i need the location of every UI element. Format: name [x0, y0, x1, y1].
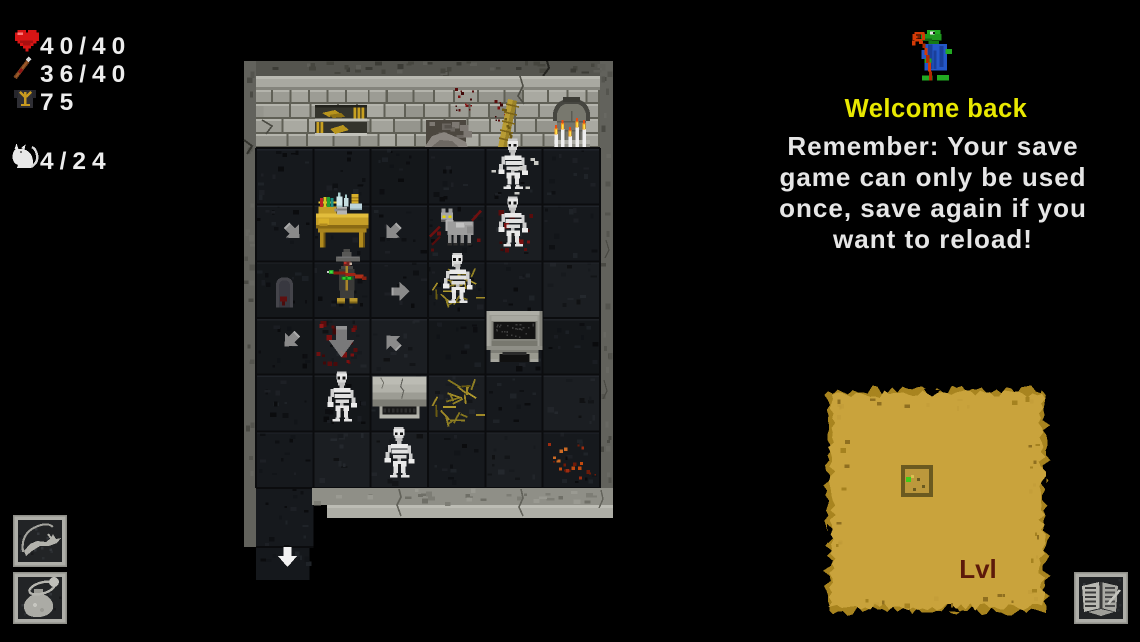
- svg-text:Lvl: Lvl: [959, 554, 997, 584]
- svg-text:once, save again if you: once, save again if you: [779, 193, 1087, 223]
- svg-text:4/24: 4/24: [40, 148, 112, 175]
- svg-text:want to reload!: want to reload!: [832, 224, 1033, 254]
- svg-text:75: 75: [40, 89, 79, 116]
- svg-text:40/40: 40/40: [40, 33, 131, 60]
- svg-text:Remember: Your save: Remember: Your save: [787, 131, 1078, 161]
- svg-text:Welcome back: Welcome back: [845, 95, 1028, 123]
- svg-text:game can only be used: game can only be used: [779, 162, 1086, 192]
- svg-text:36/40: 36/40: [40, 61, 131, 88]
